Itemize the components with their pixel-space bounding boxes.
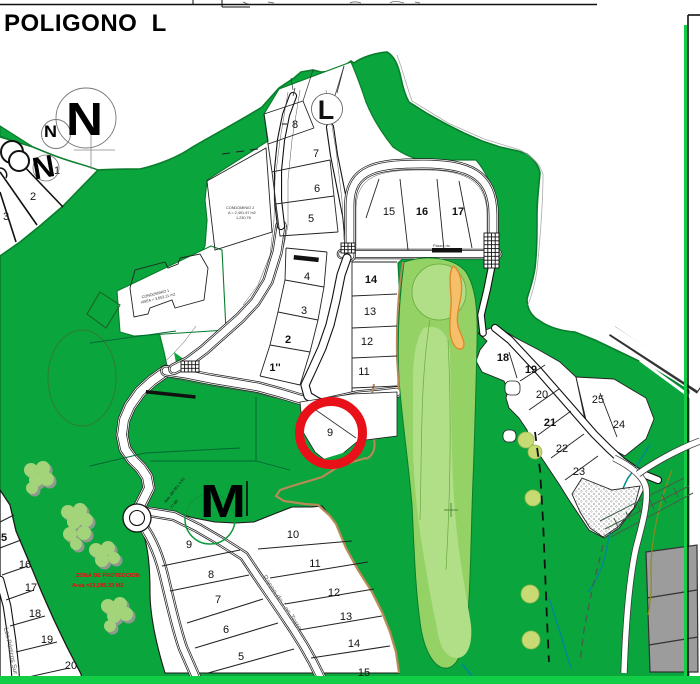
- svg-text:N: N: [44, 122, 57, 141]
- svg-text:4: 4: [304, 271, 310, 283]
- svg-text:19: 19: [525, 364, 537, 376]
- svg-text:8: 8: [292, 119, 298, 131]
- svg-text:Area =13,195.33 M2: Area =13,195.33 M2: [72, 583, 123, 589]
- svg-text:24: 24: [613, 419, 625, 431]
- svg-text:14: 14: [365, 274, 378, 286]
- svg-text:18: 18: [497, 352, 509, 364]
- svg-text:3: 3: [3, 211, 9, 223]
- svg-text:ZONA DE PROTECCION: ZONA DE PROTECCION: [76, 573, 140, 579]
- svg-text:25: 25: [592, 394, 604, 406]
- svg-text:CONDOMINIO 2: CONDOMINIO 2: [226, 206, 254, 210]
- svg-text:13: 13: [340, 611, 352, 623]
- svg-text:12: 12: [361, 336, 373, 348]
- svg-text:14: 14: [348, 638, 360, 650]
- svg-text:12: 12: [328, 587, 340, 599]
- svg-text:18: 18: [29, 608, 41, 620]
- svg-text:A = 2,491.97 m2: A = 2,491.97 m2: [228, 211, 256, 215]
- svg-text:Paseo rio: Paseo rio: [433, 243, 451, 248]
- svg-text:7: 7: [313, 148, 319, 160]
- svg-text:1'': 1'': [269, 362, 281, 374]
- svg-text:N: N: [66, 93, 103, 145]
- svg-text:22: 22: [556, 443, 568, 455]
- svg-text:11: 11: [358, 366, 369, 378]
- svg-text:3: 3: [301, 305, 307, 317]
- svg-text:20: 20: [65, 660, 77, 672]
- svg-text:17: 17: [25, 582, 37, 594]
- svg-text:1,230.78: 1,230.78: [236, 216, 251, 220]
- svg-text:23: 23: [573, 466, 585, 478]
- svg-text:POLIGONO L: POLIGONO L: [4, 10, 167, 37]
- svg-text:9: 9: [327, 427, 333, 439]
- svg-text:17: 17: [452, 206, 464, 218]
- svg-text:L: L: [318, 95, 335, 125]
- svg-text:8: 8: [208, 569, 214, 581]
- svg-text:11: 11: [309, 558, 320, 570]
- svg-text:2: 2: [30, 191, 36, 203]
- svg-text:9: 9: [186, 539, 192, 551]
- svg-text:2: 2: [285, 334, 291, 346]
- svg-text:5: 5: [238, 651, 244, 663]
- svg-text:6: 6: [223, 624, 229, 636]
- svg-text:21: 21: [544, 417, 556, 429]
- svg-text:10: 10: [287, 529, 299, 541]
- svg-text:16: 16: [19, 559, 31, 571]
- svg-text:13: 13: [364, 306, 376, 318]
- svg-text:5: 5: [1, 532, 7, 544]
- svg-text:20: 20: [536, 389, 548, 401]
- svg-text:15: 15: [383, 206, 395, 218]
- svg-text:16: 16: [416, 206, 428, 218]
- svg-text:5: 5: [308, 213, 314, 225]
- svg-text:7: 7: [215, 594, 221, 606]
- svg-text:6: 6: [314, 183, 320, 195]
- svg-text:19: 19: [41, 634, 53, 646]
- svg-text:M: M: [200, 475, 246, 527]
